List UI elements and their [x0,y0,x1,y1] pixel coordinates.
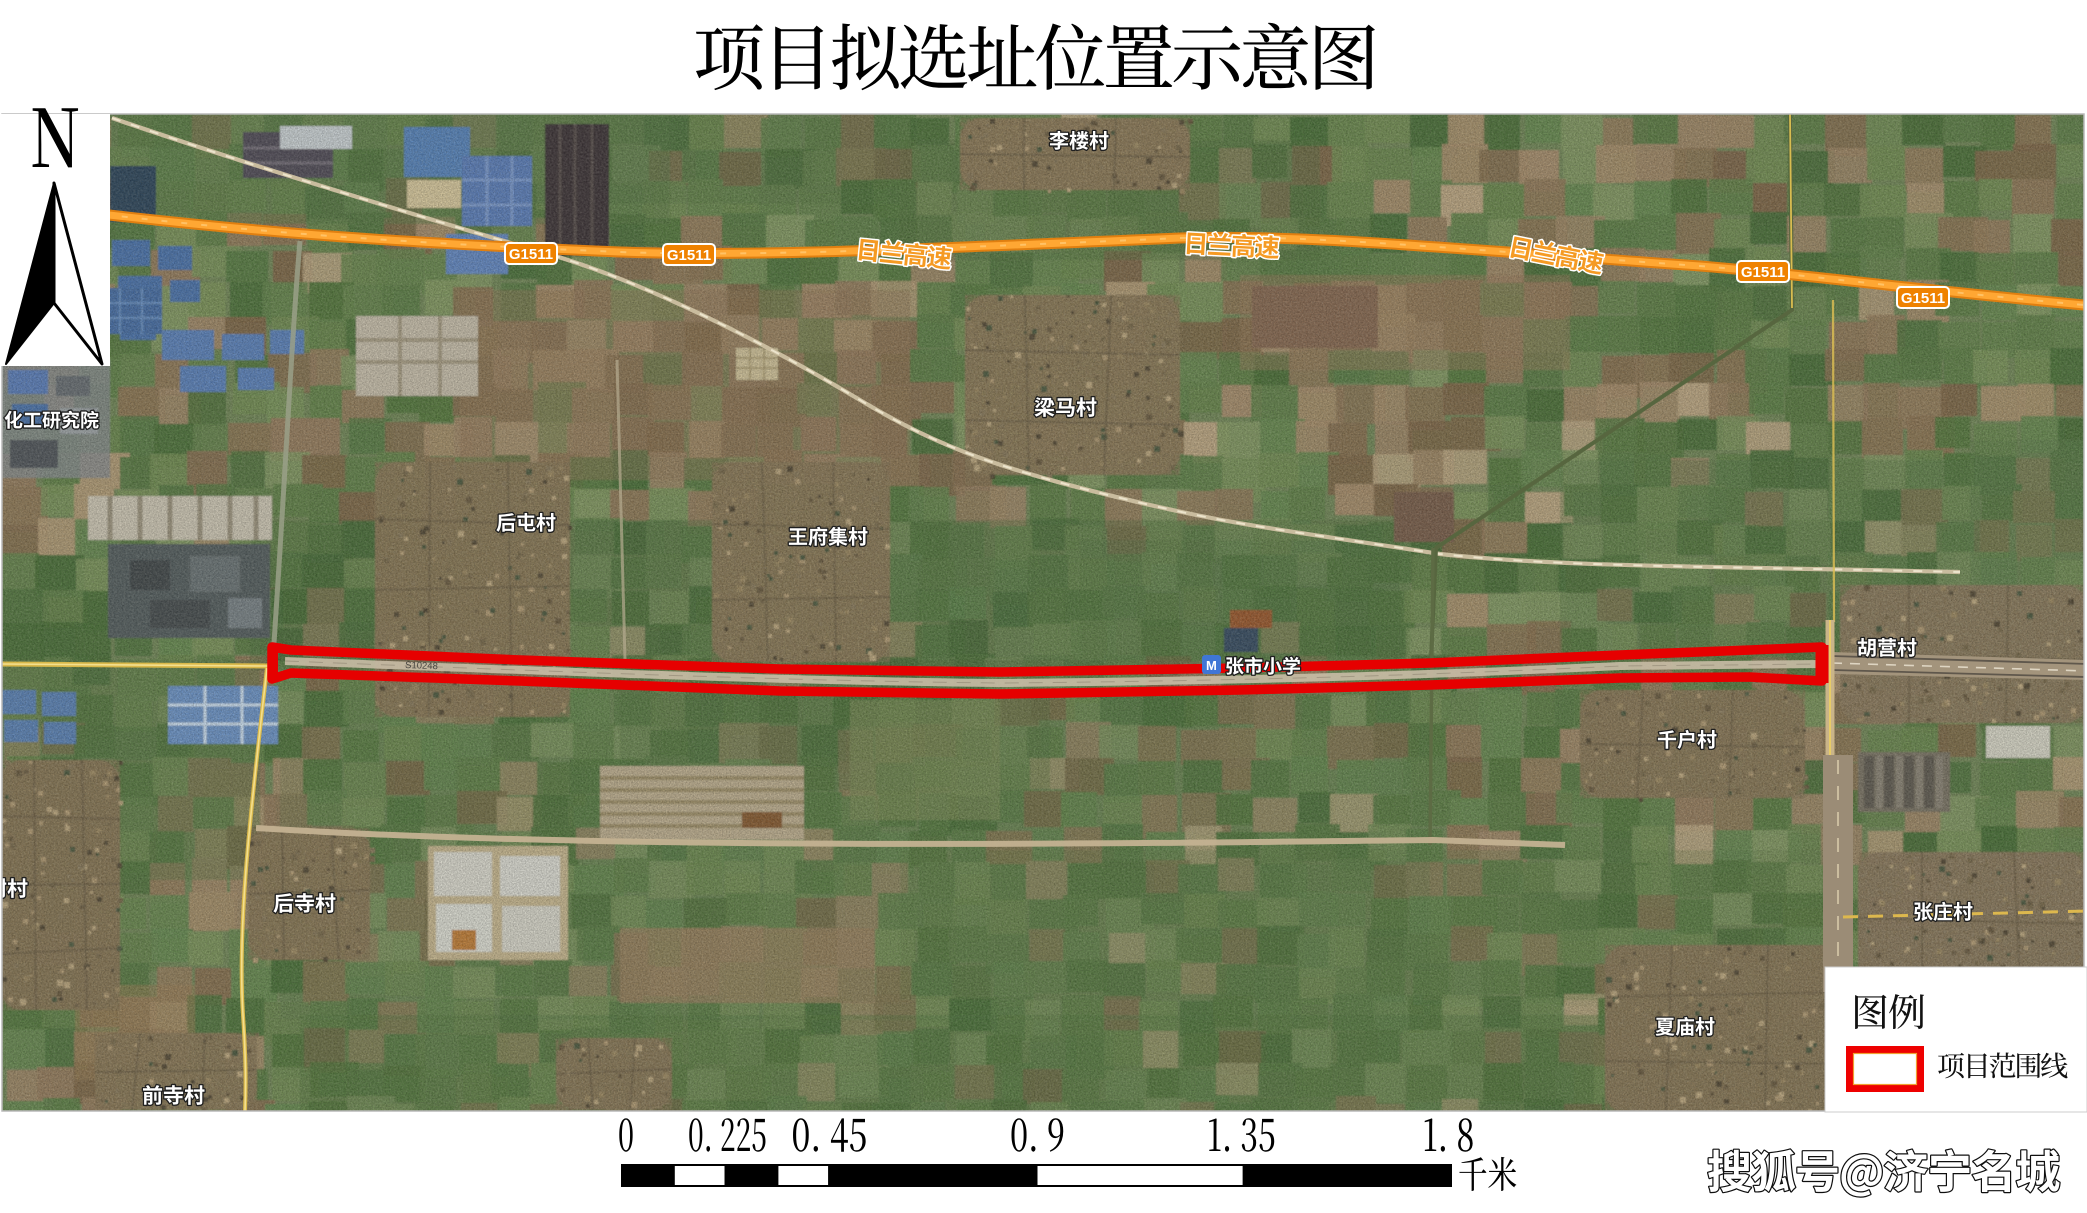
svg-text:M: M [1206,658,1217,673]
svg-text:G1511: G1511 [667,247,711,264]
svg-text:G1511: G1511 [1901,290,1945,307]
svg-text:G1511: G1511 [509,246,553,263]
svg-text:G1511: G1511 [1741,264,1785,281]
svg-text:S10248: S10248 [405,660,438,672]
